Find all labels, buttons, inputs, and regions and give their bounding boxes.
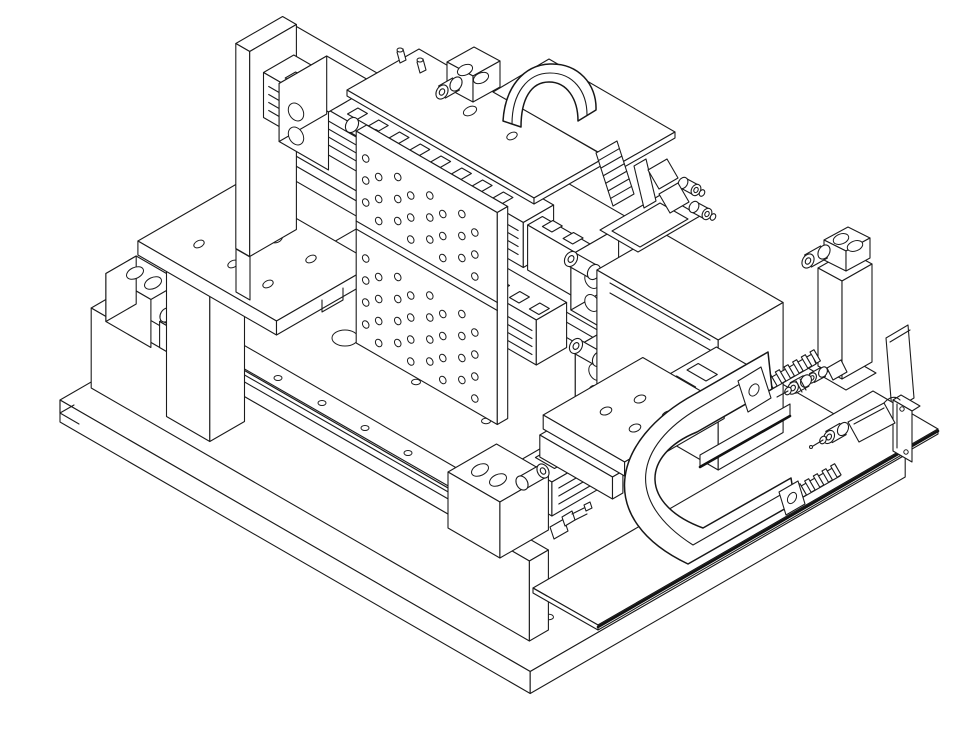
technical-drawing-page xyxy=(0,0,974,756)
right-support-column xyxy=(799,227,914,411)
isometric-assembly-drawing xyxy=(0,0,974,756)
cad-figure xyxy=(0,0,974,756)
